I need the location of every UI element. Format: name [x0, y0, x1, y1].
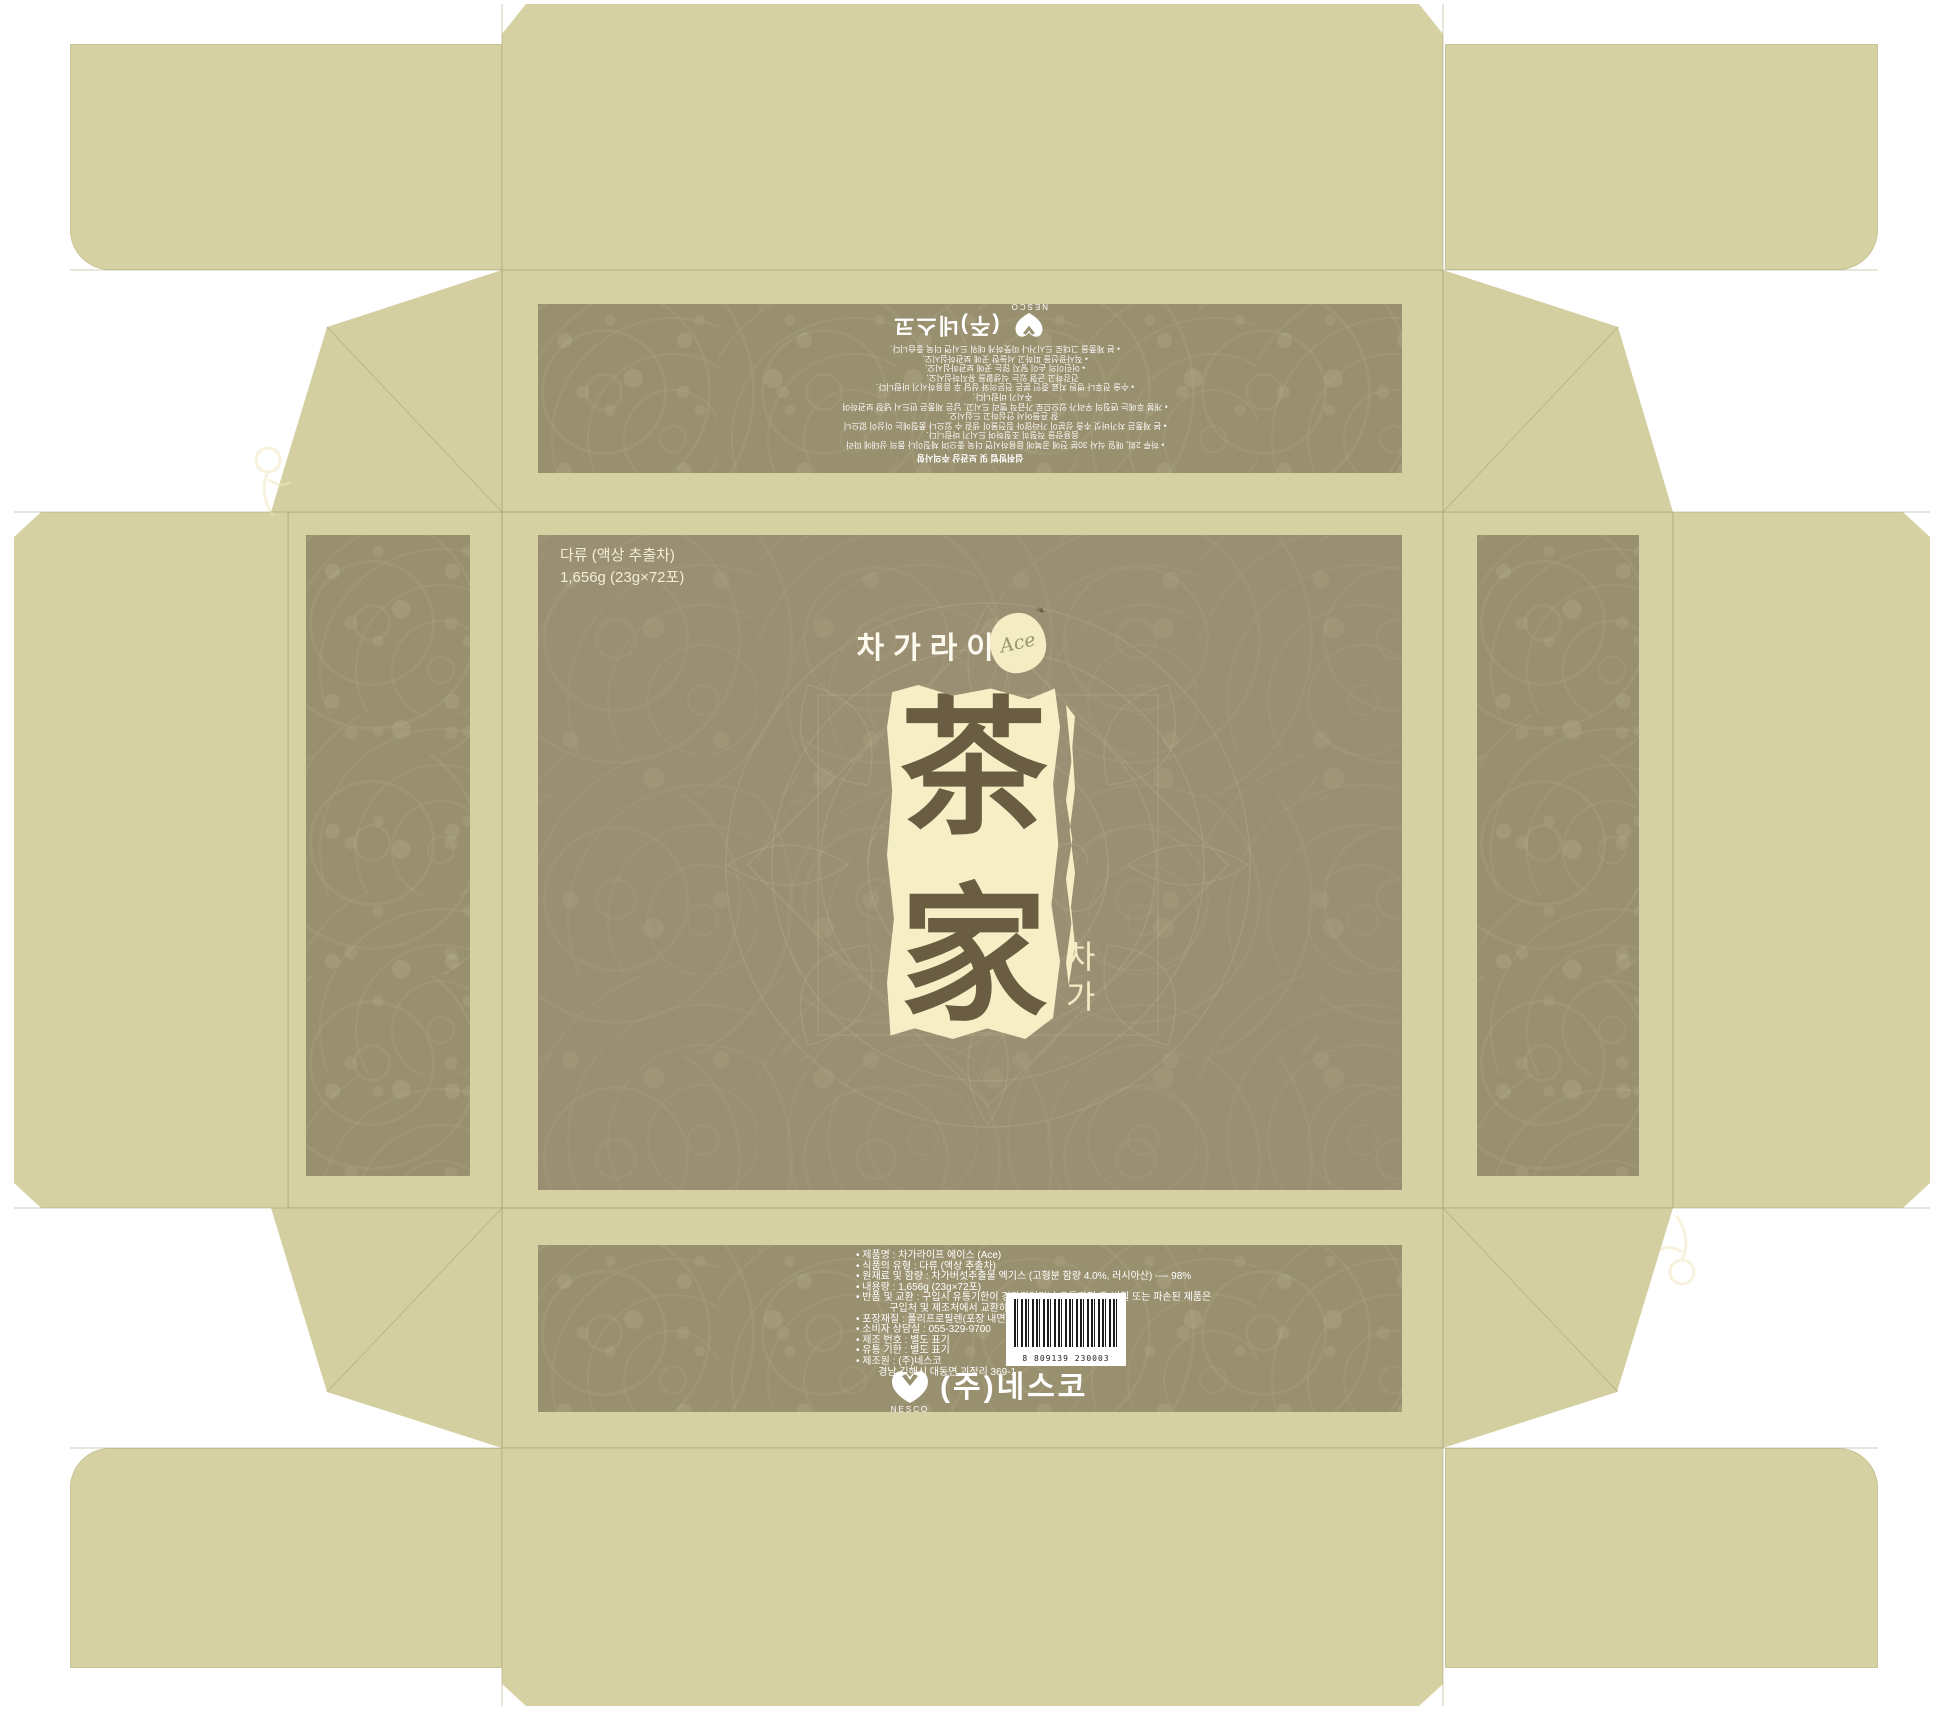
flap-right-outer: [1673, 512, 1930, 1208]
lid-print-band: 섭취방법 및 보관상 주의사항 • 하루 2회, 매일 식사 30분 전에 공복…: [538, 304, 1402, 473]
gusset-bottom-right: [1443, 1208, 1673, 1448]
barcode: 8 809139 230003: [1006, 1293, 1126, 1366]
bottom-logo-row: NESCO (주)네스코: [890, 1370, 1088, 1414]
tab-bottom-center: [502, 1448, 1443, 1706]
gusset-top-right: [1443, 270, 1673, 512]
lid-instructions-line: • 개봉 후에는 변질의 우려가 있으므로 가급적 빨리 드시고, 남은 제품은…: [770, 401, 1240, 411]
lid-instructions: • 하루 2회, 매일 식사 30분 전에 공복에 음용하시면 더욱 좋으며 체…: [770, 343, 1240, 449]
hanzi-stamp: 茶 家: [887, 685, 1060, 1039]
brand-title-row: 차가라이프: [778, 623, 1118, 667]
hanzi-tea: 茶: [900, 691, 1048, 846]
lid-logo-row: NESCO (주)네스코: [892, 302, 1048, 338]
logo-caption: NESCO: [1010, 302, 1048, 311]
heart-icon: [890, 1370, 930, 1404]
main-panel: 다류 (액상 추출차) 1,656g (23g×72포) 차가라이프 Ace ❧…: [502, 512, 1443, 1208]
nesco-logo-mark: NESCO: [890, 1370, 930, 1414]
lid-instructions-line: 음용량을 적절히 조절하여 드시기 바랍니다.: [770, 430, 1240, 440]
food-type-label: 다류 (액상 추출차): [560, 545, 684, 567]
lid-instructions-line: • 본 제품을 그대로 드시거나 따뜻하게 데워 드시면 더욱 좋습니다.: [770, 343, 1240, 353]
vertical-subtitle-char: 차: [1066, 941, 1095, 973]
vertical-subtitle-char: 가: [1066, 981, 1095, 1013]
flap-left-outer: [14, 512, 288, 1208]
hanzi-house: 家: [900, 878, 1048, 1033]
nesco-logo-mark: NESCO: [1010, 302, 1048, 338]
lid-flipped-content: 섭취방법 및 보관상 주의사항 • 하루 2회, 매일 식사 30분 전에 공복…: [538, 304, 1402, 473]
side-panel-right: [1443, 512, 1673, 1208]
lid-panel: 섭취방법 및 보관상 주의사항 • 하루 2회, 매일 식사 30분 전에 공복…: [502, 270, 1443, 512]
tab-top-left: [70, 44, 502, 270]
company-name: (주)네스코: [892, 312, 1000, 338]
lid-instructions-line: • 본 제품은 차가버섯 추출 성분이 가라앉아 침전물이 생길 수 있으나 품…: [770, 420, 1240, 430]
lid-instructions-line: 주시기 바랍니다.: [770, 391, 1240, 401]
net-weight-block: 다류 (액상 추출차) 1,656g (23g×72포): [560, 545, 684, 589]
heart-icon: [1014, 312, 1044, 338]
lid-instructions-line: • 어린이의 손이 닿지 않는 곳에 보관하십시오.: [770, 363, 1240, 373]
side-panel-left: [288, 512, 502, 1208]
barcode-number: 8 809139 230003: [1022, 1354, 1109, 1363]
lid-instructions-line: 건강하고 균형 있는 식생활을 유지하십시오.: [770, 372, 1240, 382]
logo-caption: NESCO: [891, 1405, 929, 1414]
ace-badge-label: Ace: [998, 629, 1037, 658]
tab-bottom-right: [1445, 1448, 1878, 1668]
tab-top-center: [502, 4, 1443, 270]
sprig-icon: ❧: [1034, 602, 1048, 618]
weight-label: 1,656g (23g×72포): [560, 567, 684, 589]
lid-heading: 섭취방법 및 보관상 주의사항: [917, 452, 1024, 465]
info-print-band: • 제품명 : 차가라이프 에이스 (Ace)• 식품의 유형 : 다류 (액상…: [538, 1245, 1402, 1412]
gusset-top-left: [271, 270, 502, 512]
packaging-dieline: 섭취방법 및 보관상 주의사항 • 하루 2회, 매일 식사 30분 전에 공복…: [0, 0, 1946, 1713]
tab-top-right: [1445, 44, 1878, 270]
lid-instructions-line: 잘 흔들어서 안심하고 드십시오.: [770, 411, 1240, 421]
company-name: (주)네스코: [940, 1370, 1088, 1406]
vertical-subtitle: 차 가: [1066, 941, 1095, 1013]
side-left-print-band: [306, 535, 470, 1176]
gusset-bottom-left: [271, 1208, 502, 1448]
barcode-bars: [1014, 1299, 1118, 1347]
lid-instructions-line: • 수술 전후나 병원 치료 중인 분은 전문의와 상담 후 음용하시기 바랍니…: [770, 382, 1240, 392]
lid-instructions-line: • 하루 2회, 매일 식사 30분 전에 공복에 음용하시면 더욱 좋으며 체…: [770, 439, 1240, 449]
tab-bottom-left: [70, 1448, 502, 1668]
side-right-print-band: [1477, 535, 1639, 1176]
main-print-band: 다류 (액상 추출차) 1,656g (23g×72포) 차가라이프 Ace ❧…: [538, 535, 1402, 1190]
lid-instructions-line: • 직사광선을 피하고 서늘한 곳에 보관하십시오.: [770, 353, 1240, 363]
product-info-list-line: • 제품명 : 차가라이프 에이스 (Ace): [856, 1251, 1228, 1262]
bottom-panel: • 제품명 : 차가라이프 에이스 (Ace)• 식품의 유형 : 다류 (액상…: [502, 1208, 1443, 1448]
